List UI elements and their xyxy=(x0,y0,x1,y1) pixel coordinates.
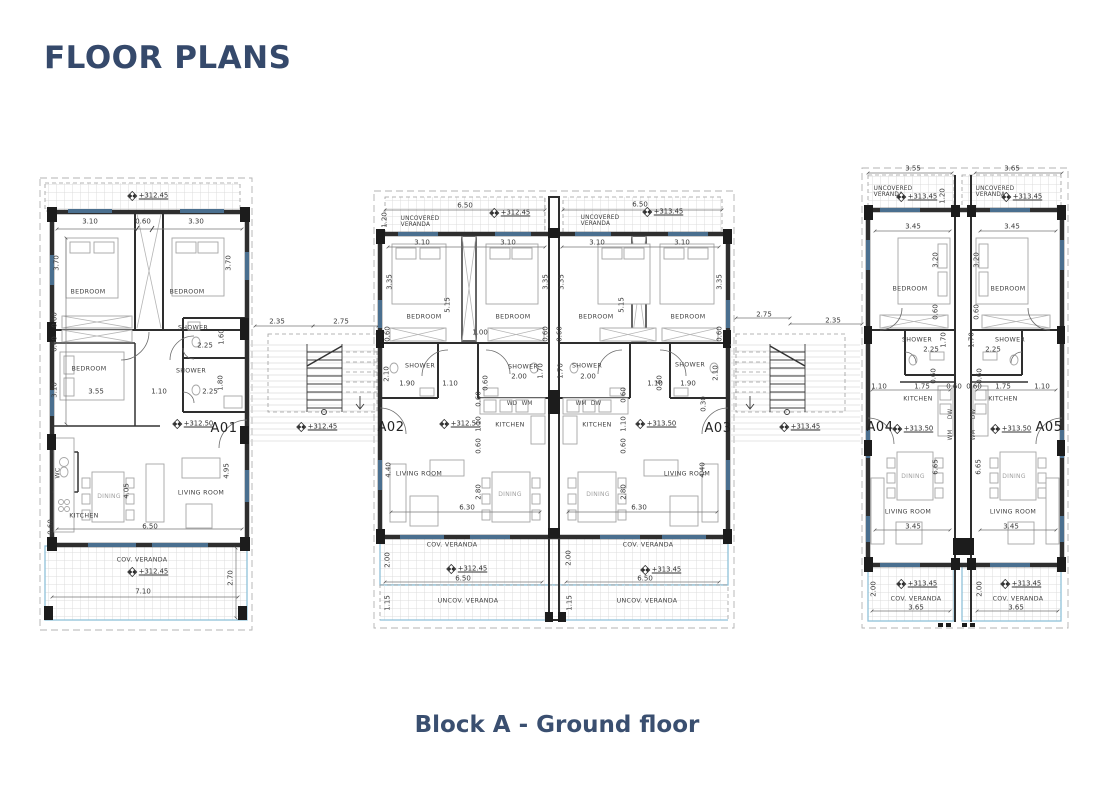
building-a04-a05-drawing xyxy=(862,168,1068,628)
plan-caption: Block A - Ground floor xyxy=(0,712,1114,738)
stair-right-drawing xyxy=(730,318,862,442)
stair-left-drawing xyxy=(249,326,378,442)
floor-plan-drawing xyxy=(0,0,1114,794)
floor-plan: 3.100.603.303.703.700.600.603.102.251.60… xyxy=(0,0,1114,794)
floor-plans-page: FLOOR PLANS xyxy=(0,0,1114,794)
building-a01-drawing xyxy=(40,178,252,630)
building-a02-a03-drawing xyxy=(374,191,734,628)
